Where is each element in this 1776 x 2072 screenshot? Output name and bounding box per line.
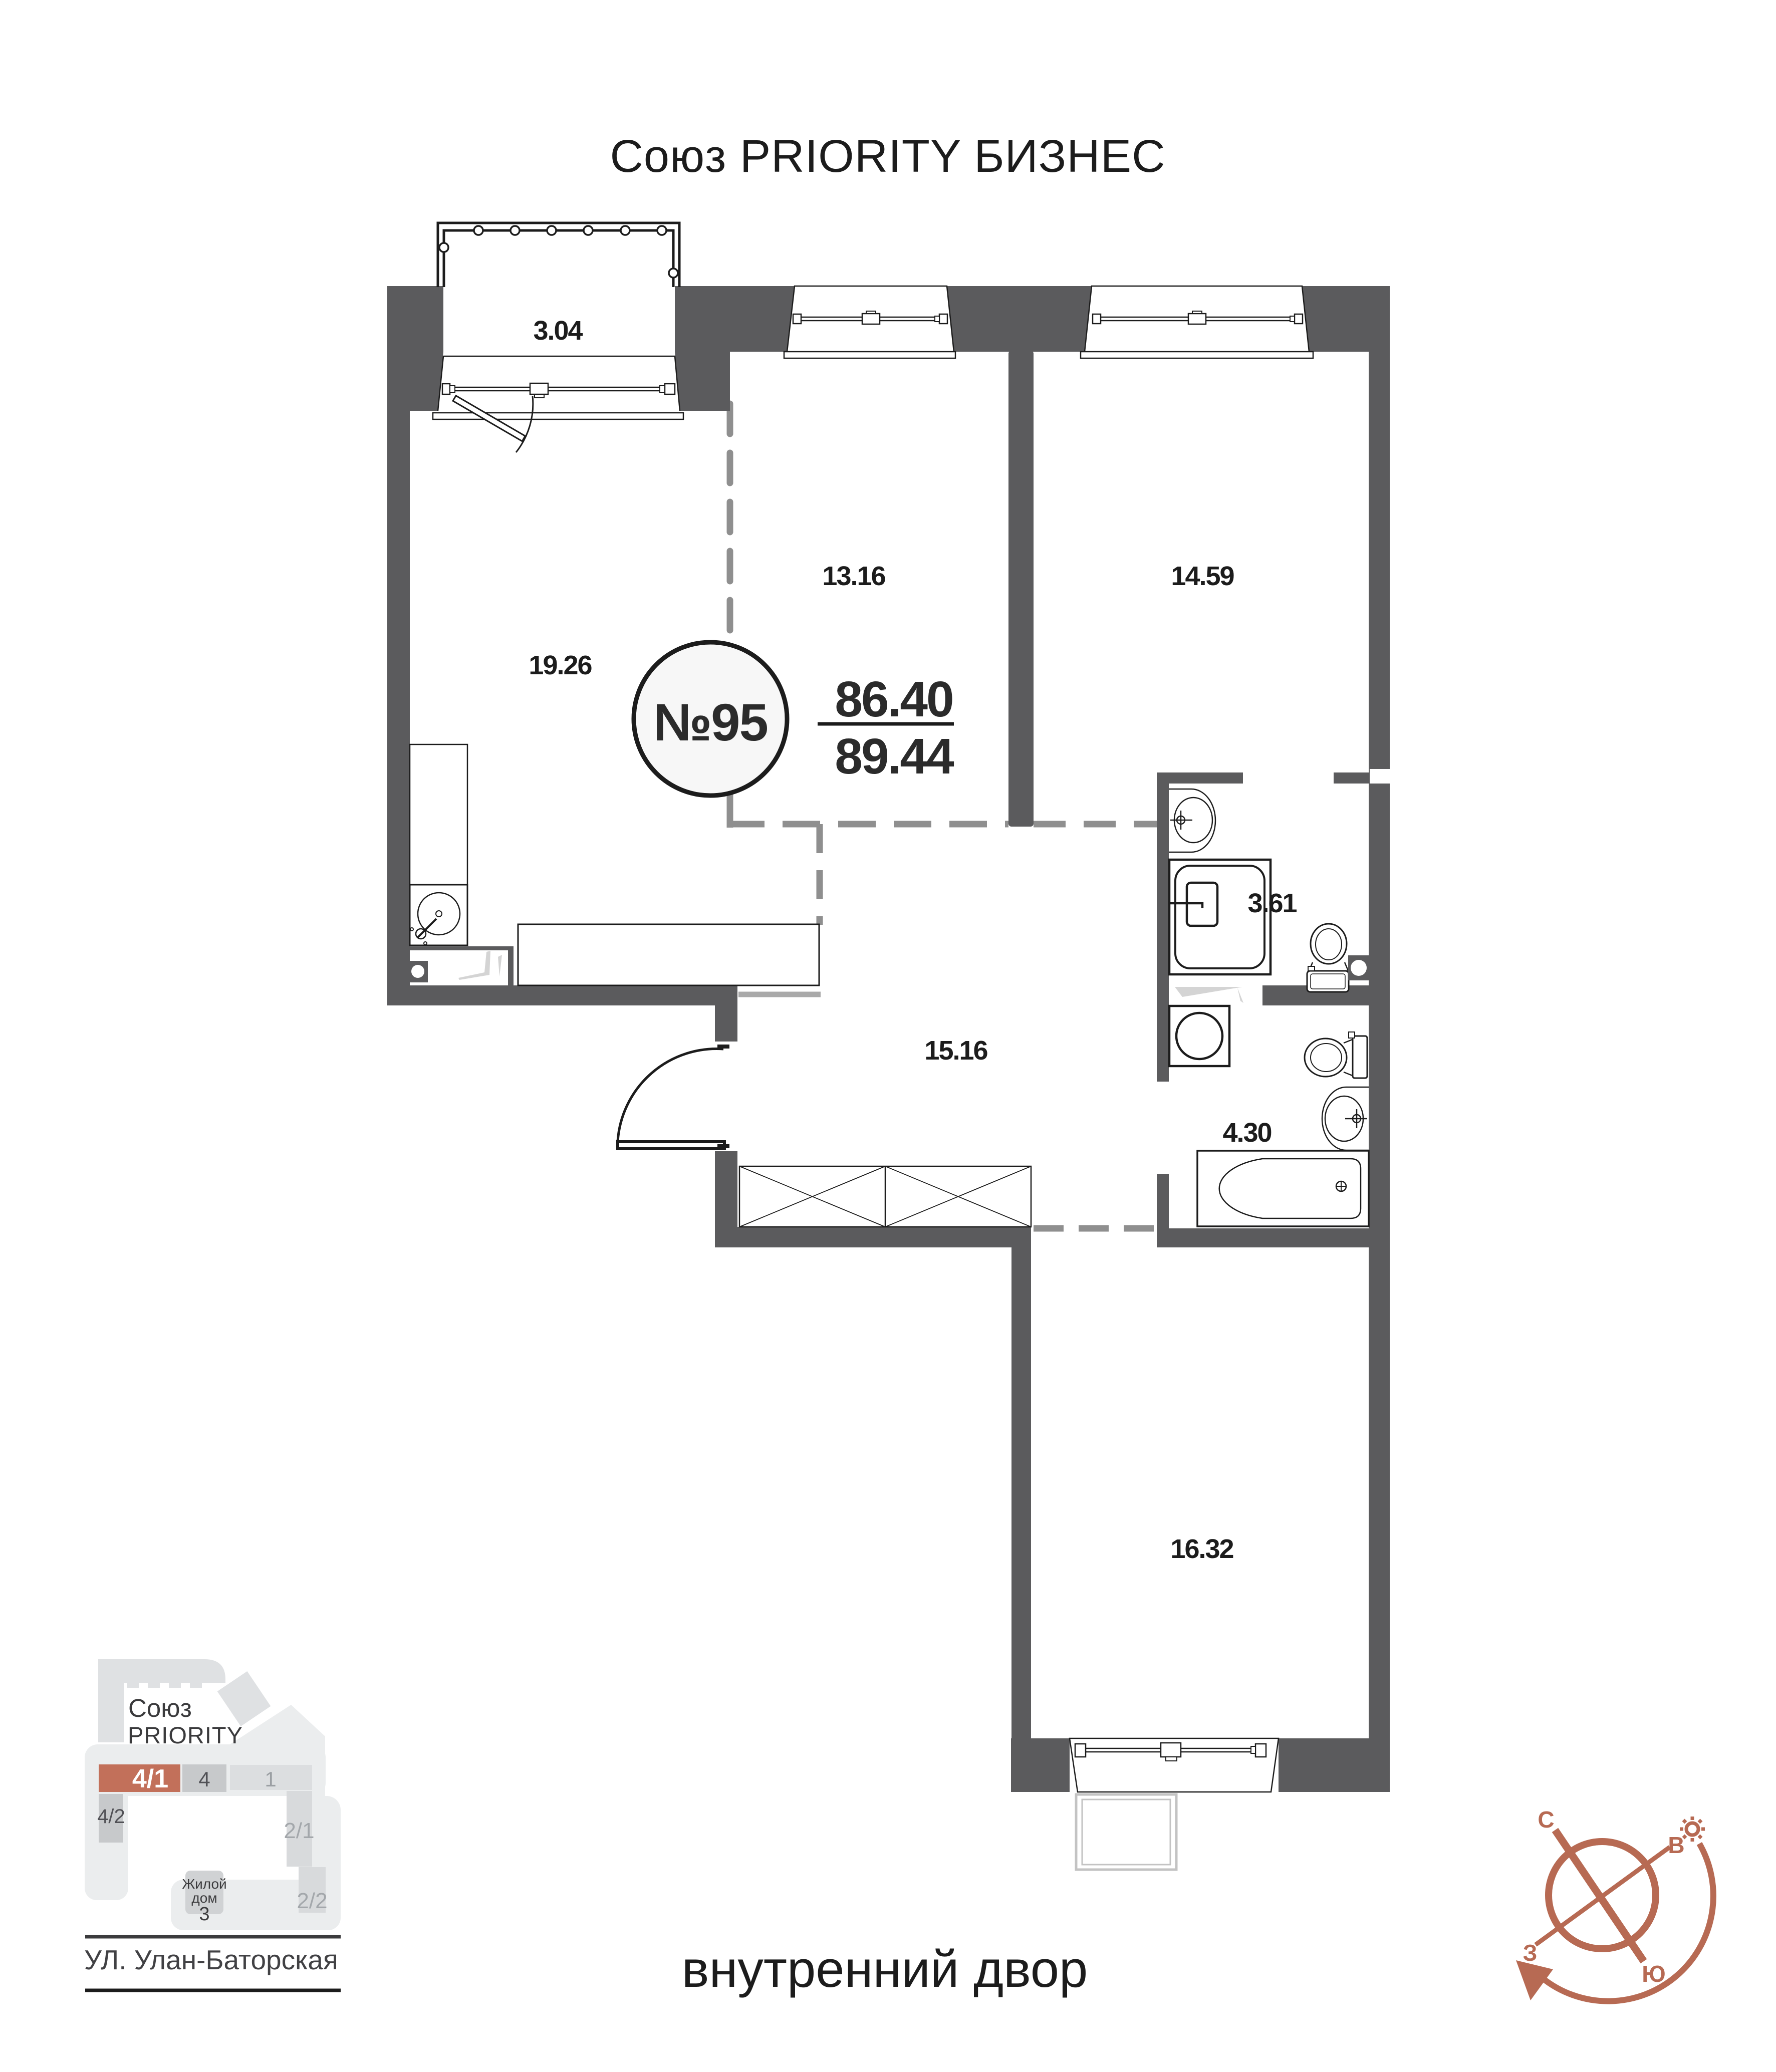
- svg-text:19.26: 19.26: [529, 650, 592, 680]
- svg-text:3.61: 3.61: [1247, 888, 1297, 918]
- svg-text:4/1: 4/1: [132, 1764, 168, 1793]
- svg-text:2/1: 2/1: [284, 1819, 314, 1843]
- svg-text:4.30: 4.30: [1222, 1118, 1271, 1148]
- svg-text:16.32: 16.32: [1170, 1534, 1233, 1564]
- svg-text:2/2: 2/2: [297, 1889, 327, 1913]
- svg-text:4/2: 4/2: [97, 1805, 125, 1828]
- svg-text:86.40: 86.40: [835, 671, 952, 727]
- svg-text:13.16: 13.16: [822, 561, 885, 591]
- svg-text:УЛ. Улан-Баторская: УЛ. Улан-Баторская: [84, 1944, 338, 1975]
- svg-text:Союз PRIORITY БИЗНЕС: Союз PRIORITY БИЗНЕС: [610, 131, 1165, 182]
- svg-text:Жилой: Жилой: [182, 1876, 226, 1892]
- svg-text:Ю: Ю: [1642, 1961, 1665, 1987]
- svg-text:В: В: [1668, 1832, 1684, 1858]
- svg-text:3.04: 3.04: [533, 316, 583, 346]
- svg-text:внутренний двор: внутренний двор: [682, 1940, 1088, 1998]
- svg-text:С: С: [1538, 1806, 1554, 1833]
- svg-text:№95: №95: [653, 693, 768, 752]
- svg-text:15.16: 15.16: [924, 1035, 987, 1066]
- svg-text:3: 3: [199, 1904, 209, 1925]
- svg-text:1: 1: [265, 1767, 276, 1791]
- svg-text:4: 4: [198, 1767, 210, 1791]
- svg-text:89.44: 89.44: [835, 728, 954, 785]
- svg-text:PRIORITY: PRIORITY: [128, 1722, 243, 1748]
- svg-text:14.59: 14.59: [1171, 561, 1234, 591]
- svg-text:Союз: Союз: [128, 1694, 192, 1722]
- svg-text:З: З: [1523, 1940, 1538, 1966]
